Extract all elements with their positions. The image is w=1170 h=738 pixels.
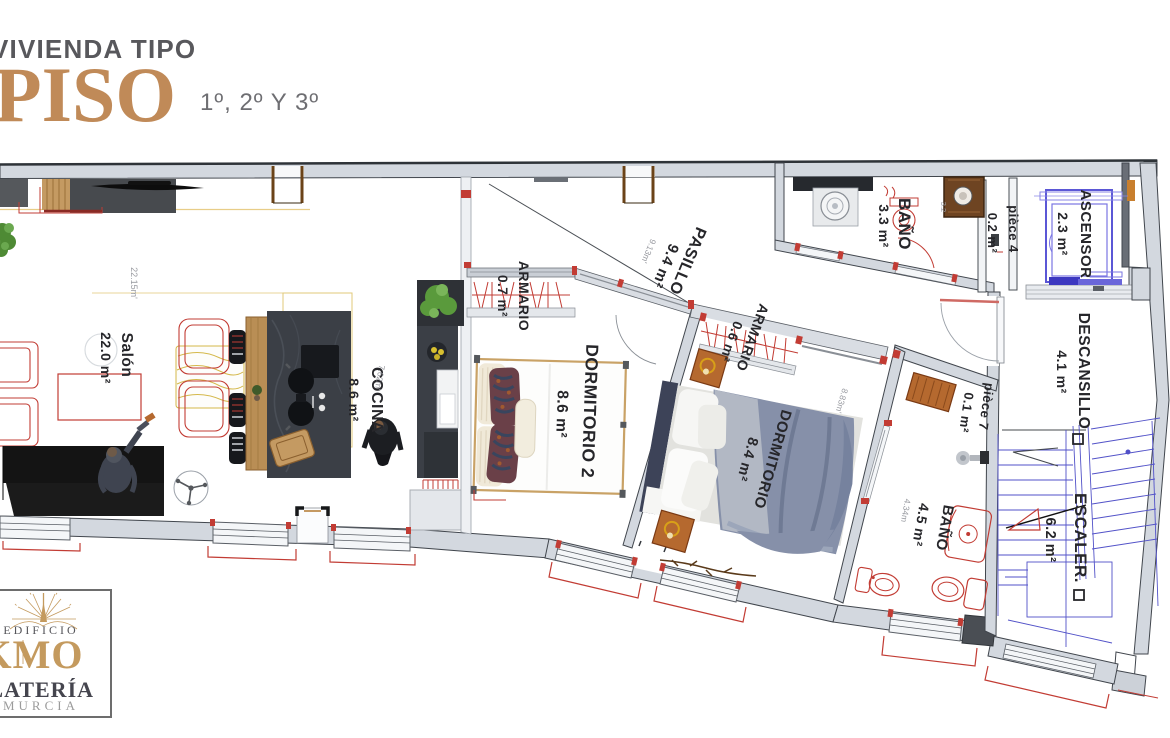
svg-text:4.1 m²: 4.1 m² <box>1054 350 1070 393</box>
svg-text:3.2: 3.2 <box>939 202 948 212</box>
svg-text:MURCIA: MURCIA <box>3 698 79 713</box>
svg-text:BAÑO: BAÑO <box>895 198 915 250</box>
svg-text:6.2 m²: 6.2 m² <box>1042 518 1058 563</box>
svg-text:Salón: Salón <box>118 333 135 378</box>
svg-text:ARMARIO: ARMARIO <box>516 261 532 331</box>
svg-text:PISO: PISO <box>0 51 176 138</box>
svg-text:22.0 m²: 22.0 m² <box>98 332 114 384</box>
svg-text:ASCENSOR: ASCENSOR <box>1077 189 1094 278</box>
svg-text:pièce 4: pièce 4 <box>1006 205 1021 253</box>
svg-text:0.7 m²: 0.7 m² <box>495 275 510 317</box>
svg-text:0.2 m²: 0.2 m² <box>985 213 1000 254</box>
svg-text:ESCALER.: ESCALER. <box>1071 493 1090 583</box>
svg-text:22.15m': 22.15m' <box>129 267 139 299</box>
svg-text:DESCANSILLO: DESCANSILLO <box>1075 313 1092 430</box>
svg-text:8.6 m²: 8.6 m² <box>346 378 362 421</box>
svg-text:8.6 m²: 8.6 m² <box>552 390 571 438</box>
svg-text:3.3 m²: 3.3 m² <box>876 204 892 247</box>
svg-text:1º, 2º Y 3º: 1º, 2º Y 3º <box>200 89 319 116</box>
svg-text:KMO: KMO <box>0 632 83 677</box>
svg-text:2.3 m²: 2.3 m² <box>1055 212 1071 255</box>
